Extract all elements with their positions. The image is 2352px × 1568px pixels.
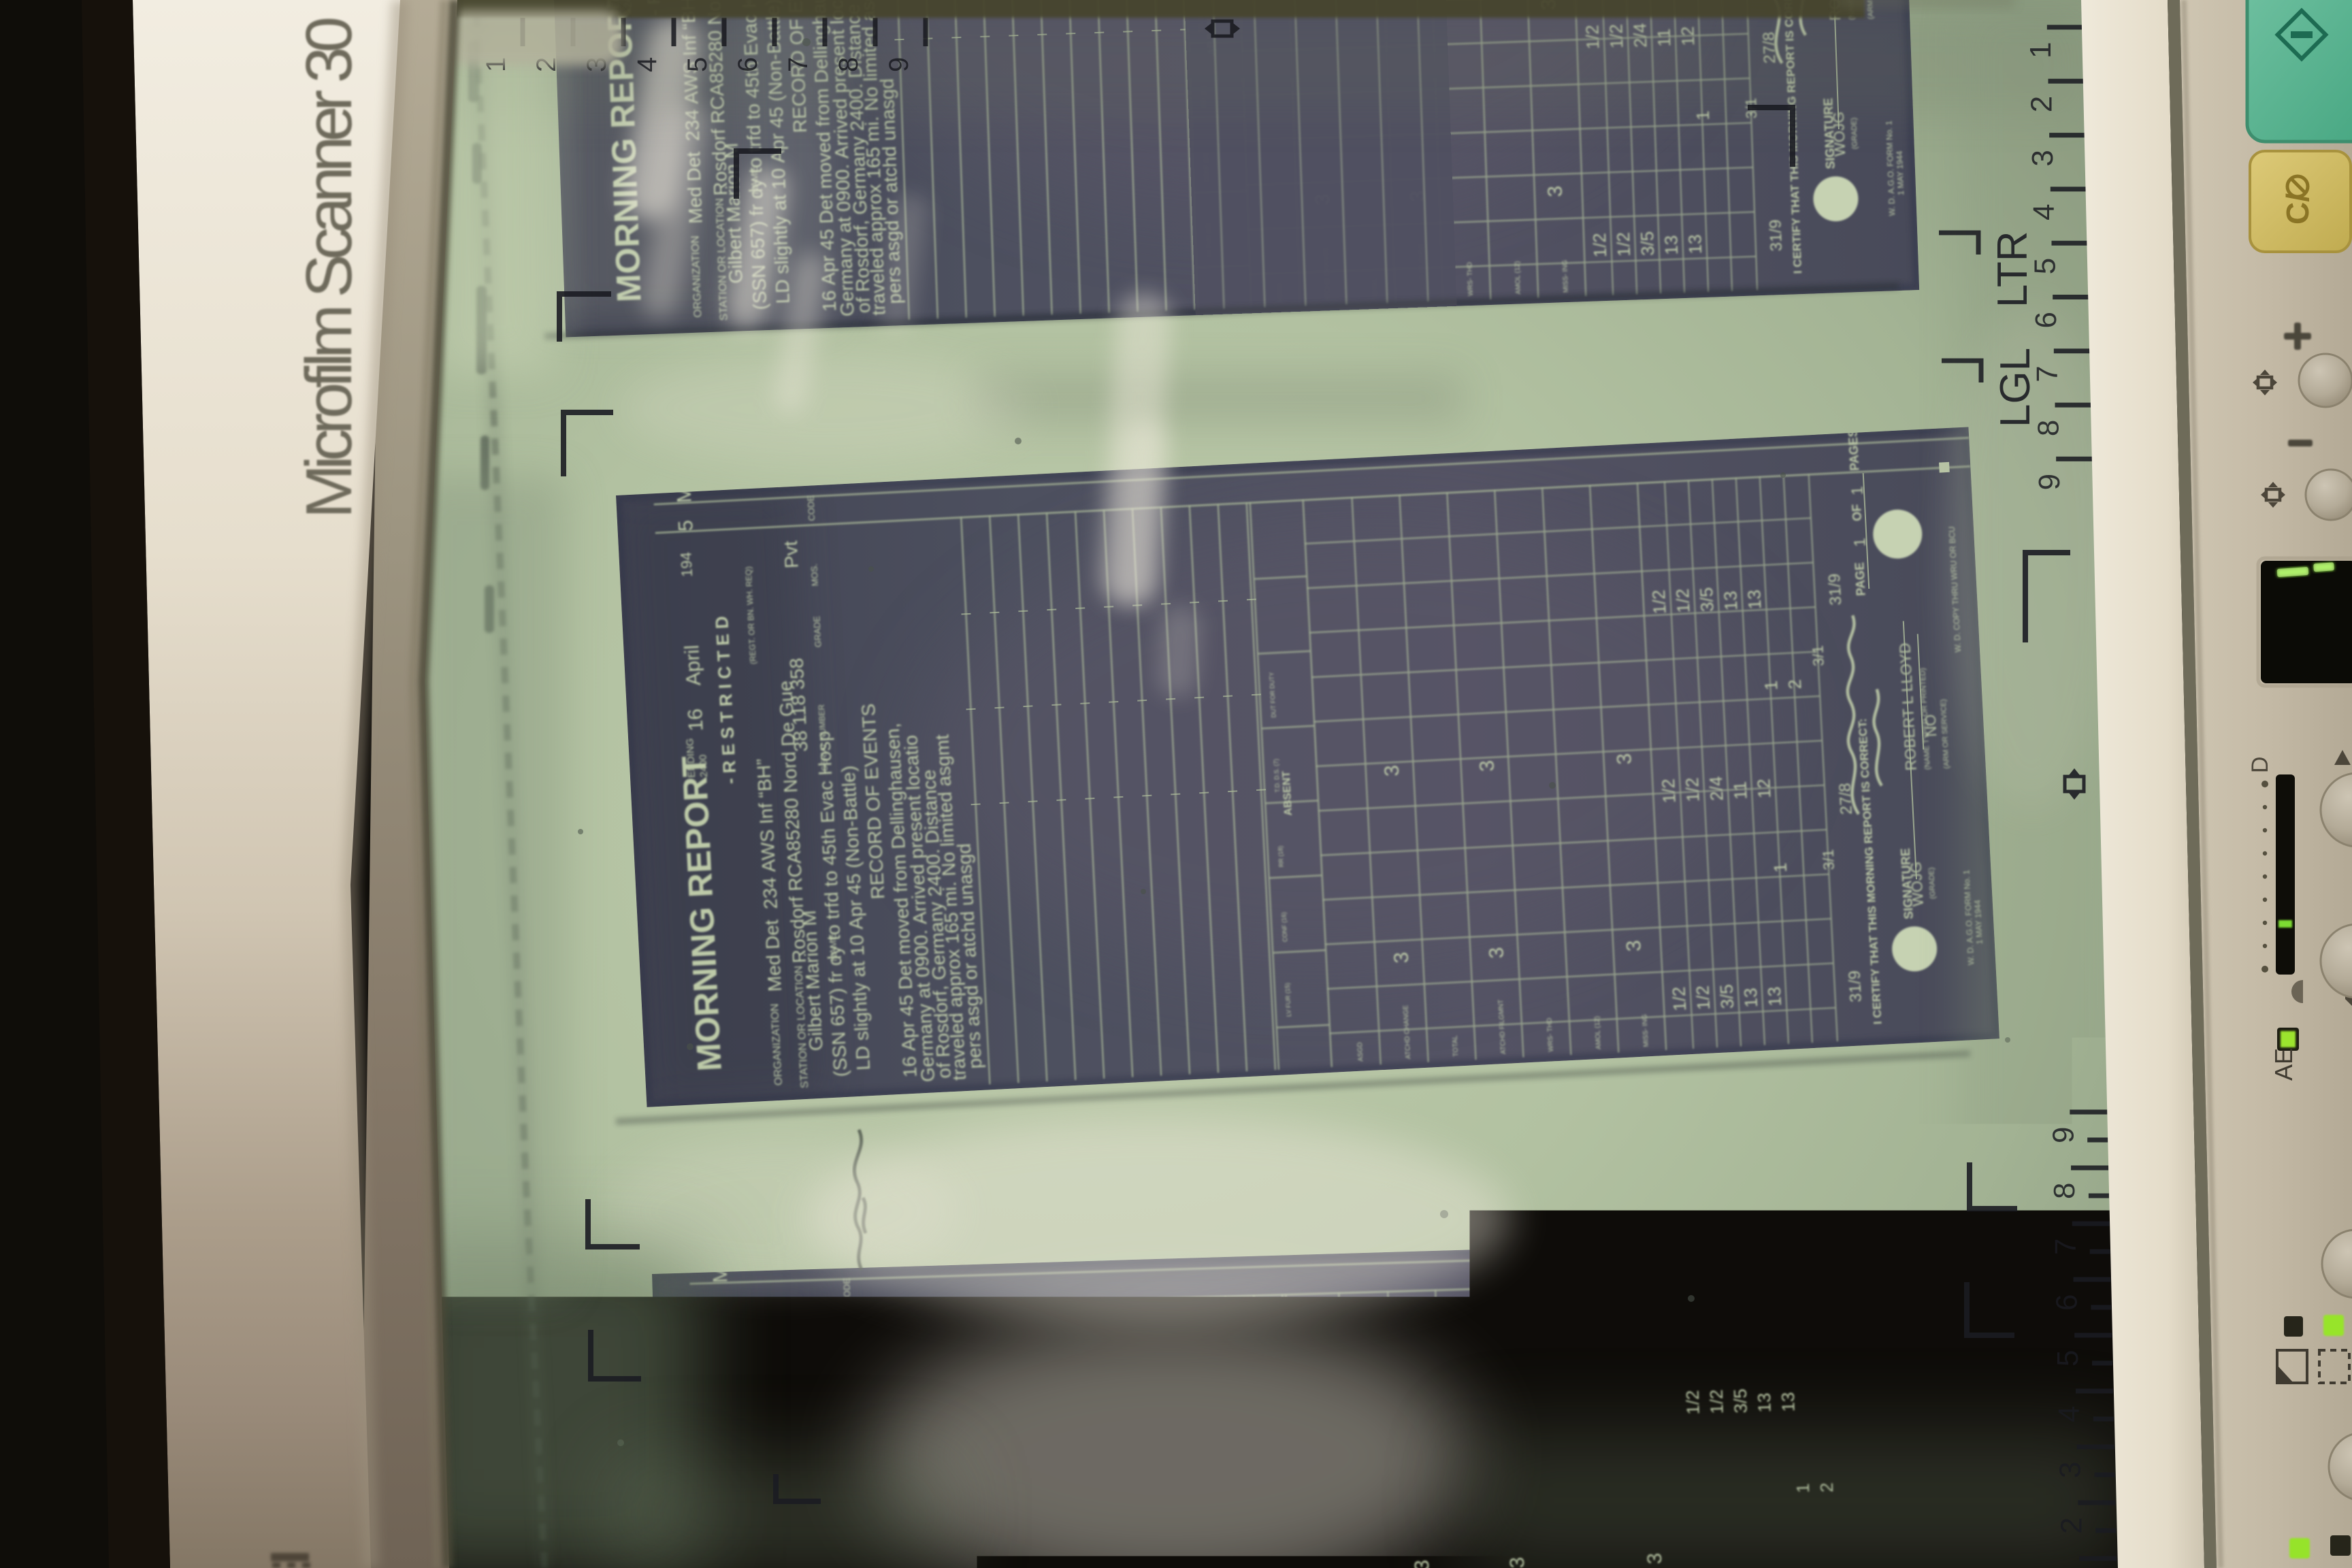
svg-text:7: 7 xyxy=(783,57,813,72)
svg-text:4: 4 xyxy=(632,57,662,72)
svg-text:8: 8 xyxy=(2048,1183,2081,1199)
svg-text:7: 7 xyxy=(2049,1239,2082,1255)
svg-text:3: 3 xyxy=(2054,1462,2087,1478)
svg-text:3: 3 xyxy=(2026,150,2059,166)
svg-text:Microfilm Scanner 30: Microfilm Scanner 30 xyxy=(293,16,365,519)
svg-text:9: 9 xyxy=(2046,1127,2080,1143)
svg-text:6: 6 xyxy=(733,57,763,72)
svg-text:2: 2 xyxy=(2055,1518,2088,1534)
svg-text:AE: AE xyxy=(2270,1048,2298,1081)
svg-text:1: 1 xyxy=(2024,42,2057,59)
svg-text:4: 4 xyxy=(2027,203,2061,220)
svg-text:6: 6 xyxy=(2050,1294,2083,1311)
svg-text:6: 6 xyxy=(2029,312,2063,328)
svg-text:5: 5 xyxy=(2051,1350,2085,1367)
svg-text:9: 9 xyxy=(884,57,914,72)
svg-text:5: 5 xyxy=(683,57,713,72)
svg-text:LTR: LTR xyxy=(1989,231,2036,308)
svg-text:LGL: LGL xyxy=(1992,348,2039,427)
svg-text:4: 4 xyxy=(2053,1406,2086,1422)
svg-text:2: 2 xyxy=(2025,96,2059,112)
svg-text:8: 8 xyxy=(834,57,864,72)
svg-text:D: D xyxy=(2247,756,2273,773)
svg-text:9: 9 xyxy=(2033,474,2066,490)
